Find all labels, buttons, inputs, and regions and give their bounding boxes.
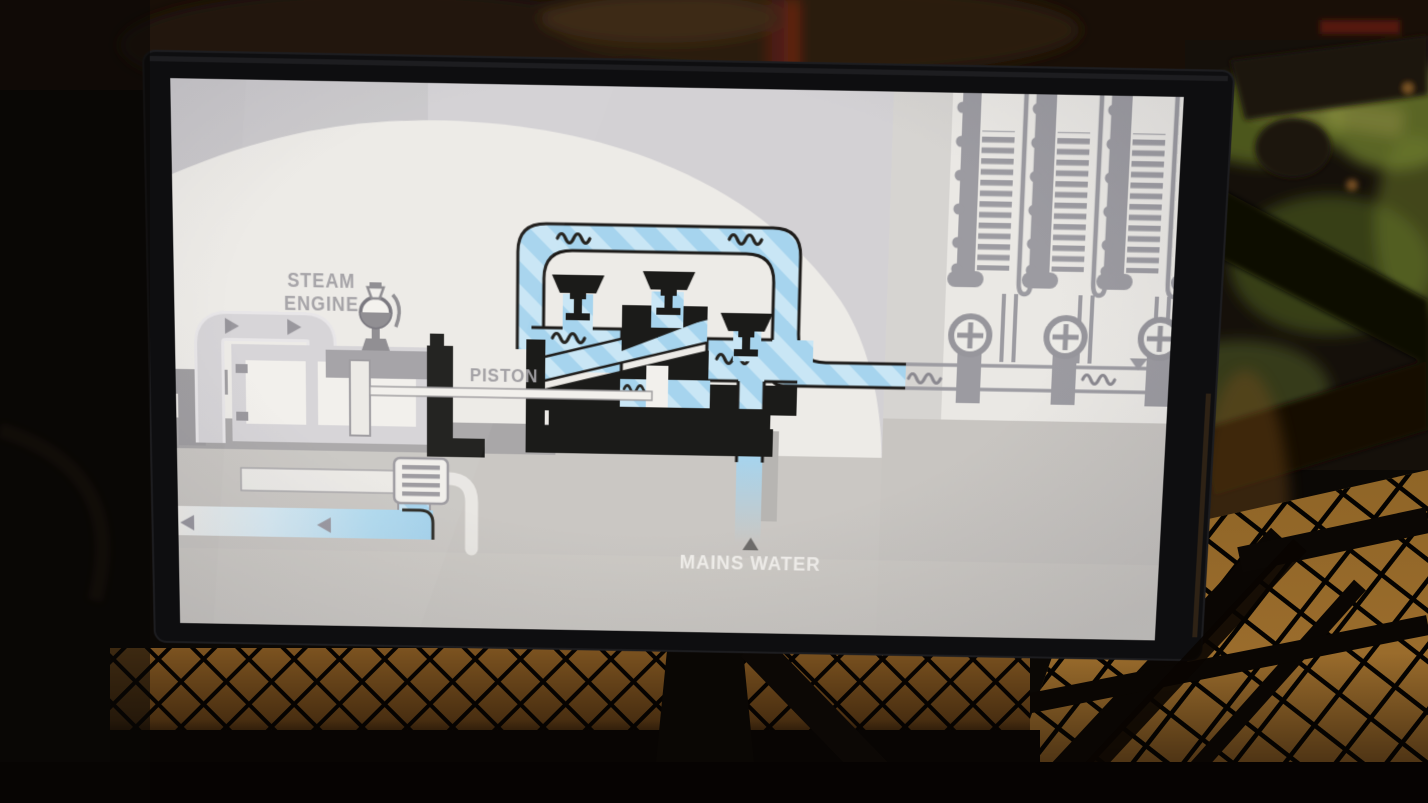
kiosk-monitor: STEAM ENGINE PISTON MAINS WATER <box>141 48 1237 662</box>
monitor-stand <box>652 640 758 803</box>
screen-diagram[interactable]: STEAM ENGINE PISTON MAINS WATER <box>159 78 1237 642</box>
exhibit-photo: STEAM ENGINE PISTON MAINS WATER <box>0 0 1428 803</box>
